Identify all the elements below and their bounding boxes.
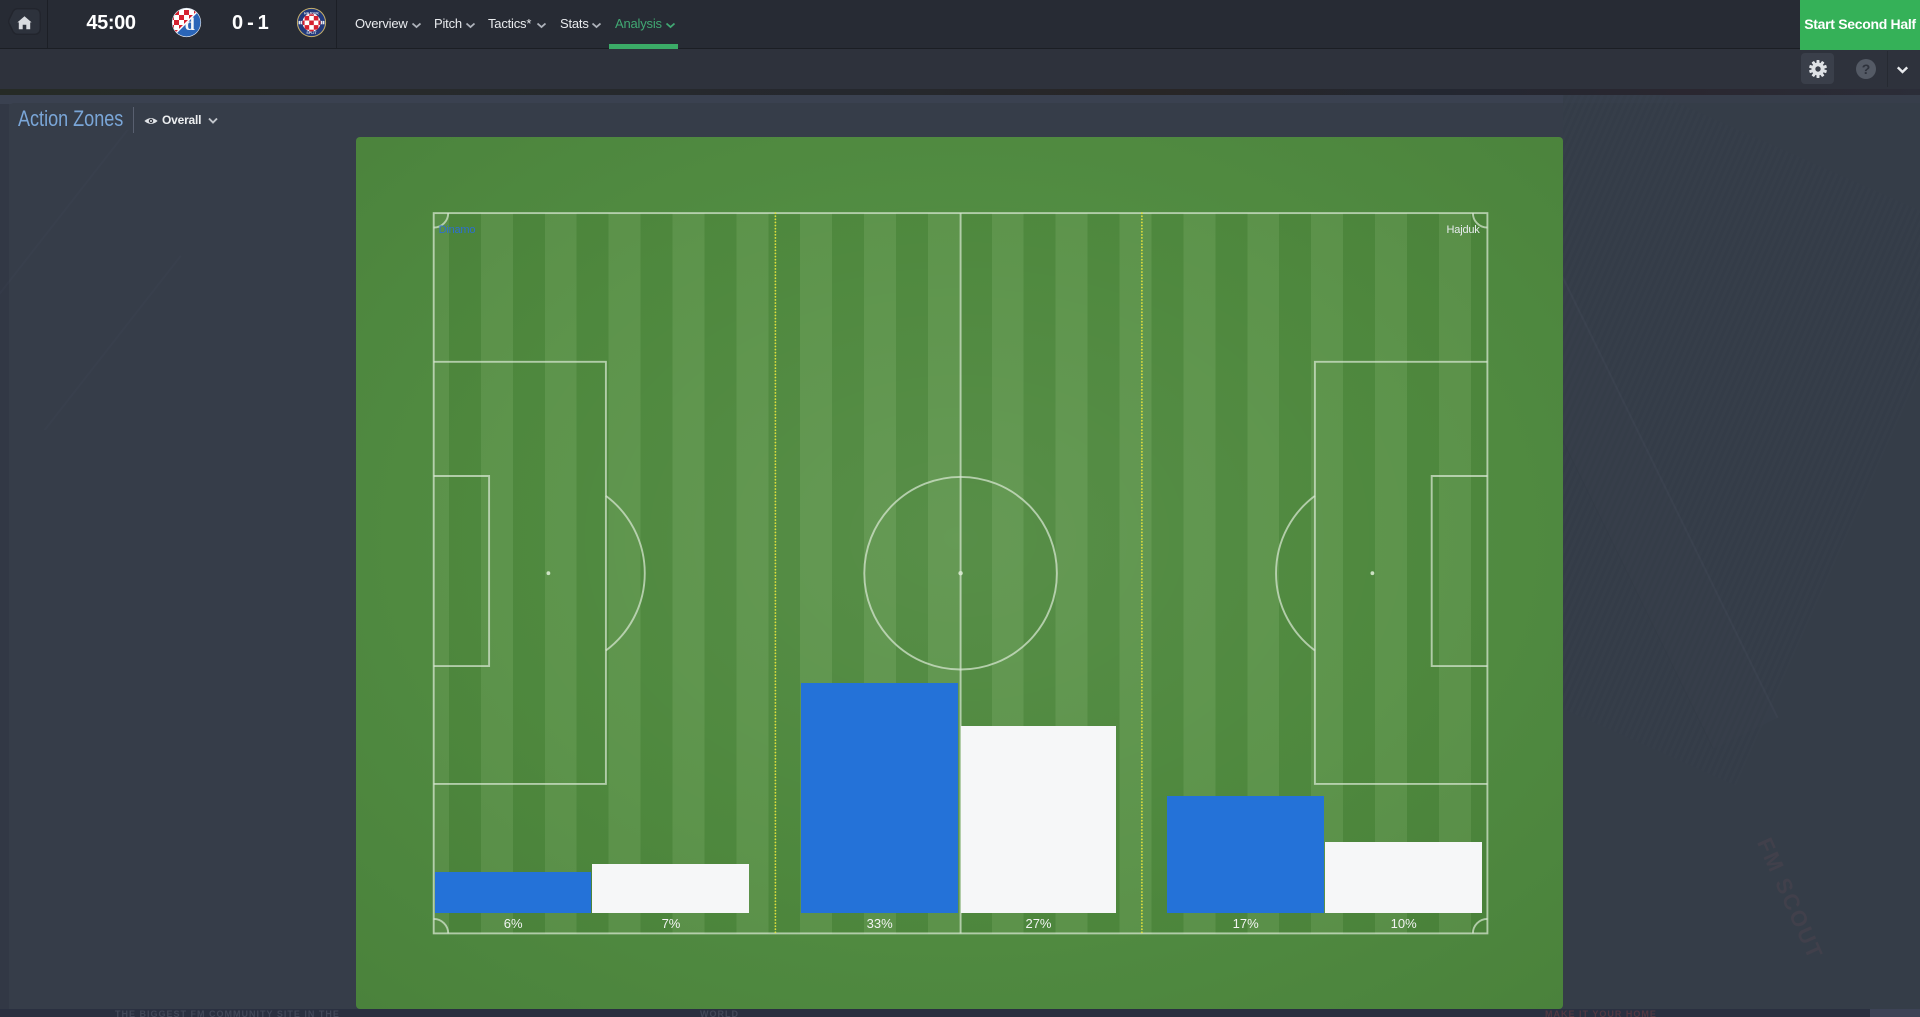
svg-text:SPLIT: SPLIT bbox=[306, 31, 317, 35]
svg-text:d: d bbox=[185, 14, 195, 34]
svg-text:HAJDUK: HAJDUK bbox=[304, 11, 319, 15]
